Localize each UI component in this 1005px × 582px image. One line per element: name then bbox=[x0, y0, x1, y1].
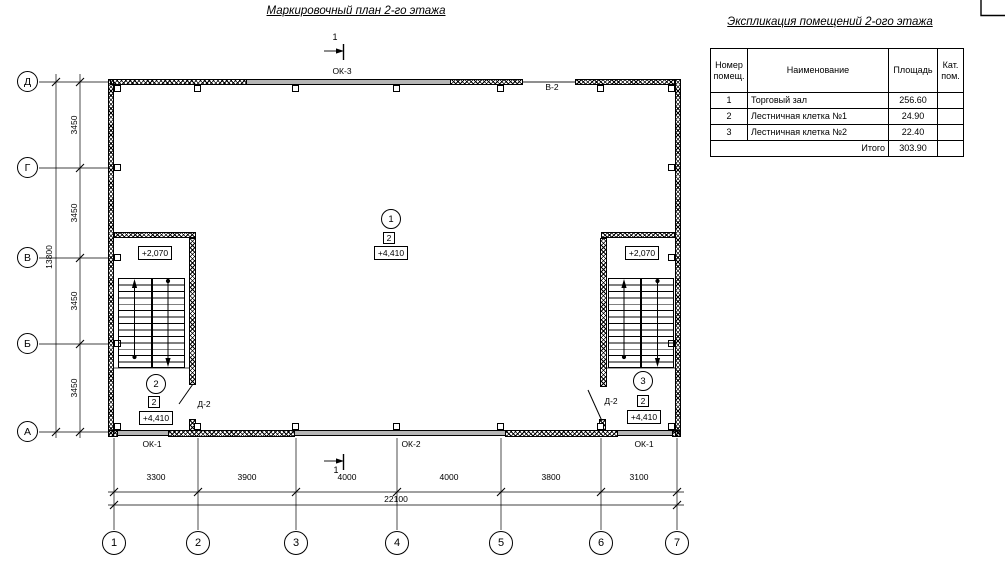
dim-3900: 3900 bbox=[238, 472, 257, 482]
cell-area: 24.90 bbox=[889, 109, 938, 125]
level-box-4410-right: +4,410 bbox=[627, 410, 661, 424]
door-leaves bbox=[179, 384, 602, 421]
axis-bubble-6: 6 bbox=[589, 531, 613, 555]
dimension-lines-left bbox=[52, 74, 84, 438]
axis-bubble-4: 4 bbox=[385, 531, 409, 555]
total-category bbox=[938, 141, 964, 157]
room-marker-1: 1 bbox=[381, 209, 401, 229]
room-marker-2: 2 bbox=[146, 374, 166, 394]
cell-area: 256.60 bbox=[889, 93, 938, 109]
stair-direction-arrows bbox=[132, 279, 660, 367]
drawing-sheet: Маркировочный план 2-го этажа Экспликаци… bbox=[0, 0, 1005, 582]
axis-bubble-7: 7 bbox=[665, 531, 689, 555]
cell-name: Лестничная клетка №1 bbox=[748, 109, 889, 125]
cell-category bbox=[938, 93, 964, 109]
level-box-2070-left: +2,070 bbox=[138, 246, 172, 260]
explication-table: Номер помещ. Наименование Площадь Кат. п… bbox=[710, 48, 964, 157]
axis-bubble-b: Б bbox=[17, 333, 38, 354]
table-row: 1 Торговый зал 256.60 bbox=[711, 93, 964, 109]
dim-22100: 22100 bbox=[384, 494, 408, 504]
header-number: Номер помещ. bbox=[711, 49, 748, 93]
window-label-ok3: ОК-3 bbox=[332, 66, 351, 76]
level-box-4410-center: +4,410 bbox=[374, 246, 408, 260]
axis-bubble-2: 2 bbox=[186, 531, 210, 555]
floor-type-marker-left: 2 bbox=[148, 396, 160, 408]
extension-lines-bottom bbox=[114, 438, 677, 530]
dim-3300: 3300 bbox=[147, 472, 166, 482]
sheet-frame-corner bbox=[981, 0, 1005, 16]
table-header-row: Номер помещ. Наименование Площадь Кат. п… bbox=[711, 49, 964, 93]
dim-3450-1: 3450 bbox=[69, 116, 79, 135]
cell-number: 2 bbox=[711, 109, 748, 125]
header-name: Наименование bbox=[748, 49, 889, 93]
dim-13800: 13800 bbox=[44, 245, 54, 269]
axis-bubble-1: 1 bbox=[102, 531, 126, 555]
opening-label-v2: В-2 bbox=[545, 82, 558, 92]
header-area: Площадь bbox=[889, 49, 938, 93]
window-label-ok1-right: ОК-1 bbox=[634, 439, 653, 449]
section-marks bbox=[324, 44, 344, 470]
cell-category bbox=[938, 109, 964, 125]
cell-number: 1 bbox=[711, 93, 748, 109]
dim-3100: 3100 bbox=[630, 472, 649, 482]
floor-type-marker-right: 2 bbox=[637, 395, 649, 407]
dim-4000-2: 4000 bbox=[440, 472, 459, 482]
table-row: 3 Лестничная клетка №2 22.40 bbox=[711, 125, 964, 141]
section-mark-label-bottom: 1 bbox=[333, 465, 338, 475]
level-box-2070-right: +2,070 bbox=[625, 246, 659, 260]
table-row: 2 Лестничная клетка №1 24.90 bbox=[711, 109, 964, 125]
cell-name: Лестничная клетка №2 bbox=[748, 125, 889, 141]
axis-bubble-d: Д bbox=[17, 71, 38, 92]
total-area: 303.90 bbox=[889, 141, 938, 157]
dim-3450-3: 3450 bbox=[69, 292, 79, 311]
axis-bubble-3: 3 bbox=[284, 531, 308, 555]
dim-3450-2: 3450 bbox=[69, 204, 79, 223]
cell-area: 22.40 bbox=[889, 125, 938, 141]
floor-type-marker-center: 2 bbox=[383, 232, 395, 244]
axis-bubble-5: 5 bbox=[489, 531, 513, 555]
door-label-left: Д-2 bbox=[197, 399, 210, 409]
cell-number: 3 bbox=[711, 125, 748, 141]
door-label-right: Д-2 bbox=[604, 396, 617, 406]
level-box-4410-left: +4,410 bbox=[139, 411, 173, 425]
cell-name: Торговый зал bbox=[748, 93, 889, 109]
window-label-ok2: ОК-2 bbox=[401, 439, 420, 449]
header-category: Кат. пом. bbox=[938, 49, 964, 93]
table-total-row: Итого 303.90 bbox=[711, 141, 964, 157]
dim-3800: 3800 bbox=[542, 472, 561, 482]
cell-category bbox=[938, 125, 964, 141]
window-label-ok1-left: ОК-1 bbox=[142, 439, 161, 449]
axis-bubble-v: В bbox=[17, 247, 38, 268]
dim-4000-1: 4000 bbox=[338, 472, 357, 482]
axis-bubble-g: Г bbox=[17, 157, 38, 178]
room-marker-3: 3 bbox=[633, 371, 653, 391]
total-label: Итого bbox=[711, 141, 889, 157]
dim-3450-4: 3450 bbox=[69, 379, 79, 398]
section-mark-label-top: 1 bbox=[332, 32, 337, 42]
axis-bubble-a: А bbox=[17, 421, 38, 442]
